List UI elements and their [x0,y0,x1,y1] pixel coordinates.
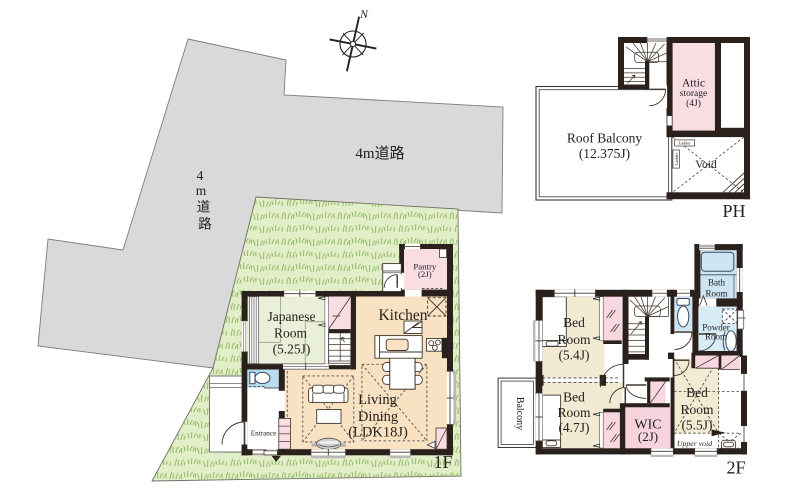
svg-text:(LDK18J): (LDK18J) [348,425,408,441]
svg-text:Bed: Bed [686,385,708,400]
svg-text:Bed: Bed [563,390,585,405]
svg-text:(5.5J): (5.5J) [681,418,712,433]
svg-text:Balcony: Balcony [514,397,525,430]
svg-text:(4J): (4J) [686,98,701,109]
svg-text:Dining: Dining [358,409,398,425]
svg-text:路: 路 [198,217,212,232]
svg-text:2F: 2F [726,458,745,478]
svg-text:Living: Living [358,392,397,408]
svg-text:Bed: Bed [563,315,585,330]
svg-text:(5.4J): (5.4J) [558,348,589,363]
svg-text:N: N [359,7,369,21]
svg-text:Room: Room [274,325,308,340]
svg-text:Kitchen: Kitchen [378,307,427,324]
svg-text:Ladder: Ladder [679,141,692,146]
svg-text:(4.7J): (4.7J) [558,420,589,435]
svg-text:Room: Room [680,402,714,417]
svg-text:Room: Room [705,289,727,299]
svg-text:4m道路: 4m道路 [355,145,404,162]
svg-text:(12.375J): (12.375J) [579,146,630,161]
svg-text:Entrance: Entrance [251,430,277,438]
svg-text:m: m [196,183,207,198]
svg-text:Bath: Bath [708,278,725,288]
svg-text:storage: storage [680,89,707,99]
svg-text:Room: Room [557,405,591,420]
svg-text:PH: PH [722,201,745,221]
svg-text:(2J): (2J) [638,429,658,444]
svg-text:4: 4 [197,168,204,183]
svg-text:Room: Room [705,332,727,342]
svg-text:Upper void: Upper void [677,439,712,448]
svg-text:Room: Room [557,332,591,347]
svg-text:1F: 1F [433,452,452,472]
svg-text:(2J): (2J) [418,269,432,279]
svg-text:道: 道 [197,200,211,215]
svg-text:Attic: Attic [682,78,705,90]
svg-text:Japanese: Japanese [268,309,316,324]
svg-text:(5.25J): (5.25J) [273,341,311,356]
svg-text:Void: Void [695,159,717,171]
svg-text:Ladder: Ladder [674,152,679,165]
svg-text:Roof Balcony: Roof Balcony [567,131,643,146]
